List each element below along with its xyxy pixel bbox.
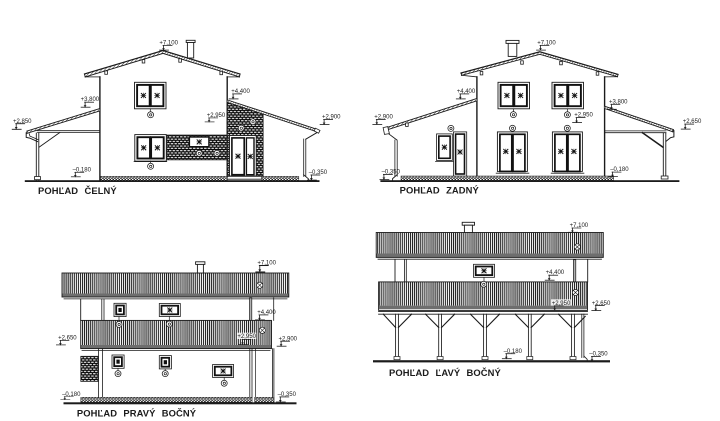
svg-text:POHĽAD PRAVÝ BOČNÝ: POHĽAD PRAVÝ BOČNÝ — [77, 407, 197, 418]
svg-text:POHĽAD ČELNÝ: POHĽAD ČELNÝ — [38, 185, 117, 196]
svg-text:POHĽAD ZADNÝ: POHĽAD ZADNÝ — [400, 184, 480, 195]
svg-text:POHĽAD ĽAVÝ BOČNÝ: POHĽAD ĽAVÝ BOČNÝ — [389, 367, 502, 378]
